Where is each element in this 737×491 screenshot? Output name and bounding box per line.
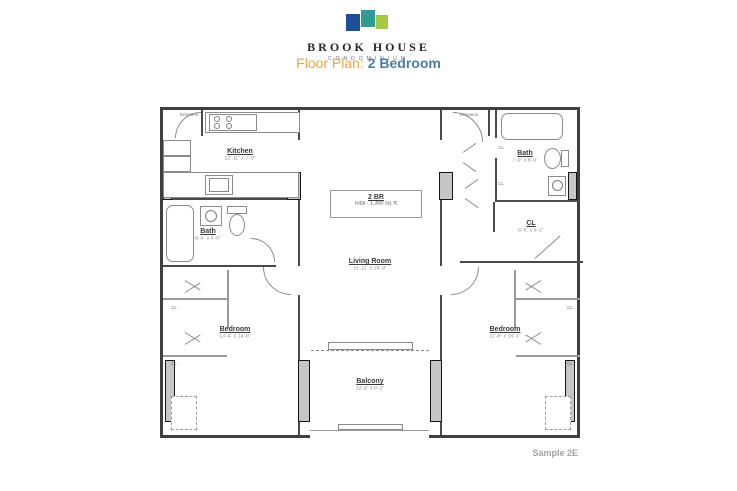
closet-room-label: CL 6'-6" x 5'-2" — [501, 220, 561, 235]
bedroom-right-label-text: Bedroom — [490, 326, 521, 333]
wall — [440, 198, 442, 266]
bath-sink-basin-icon — [552, 180, 563, 191]
refrigerator — [163, 140, 191, 156]
bathtub — [501, 113, 563, 140]
bedroom-left-dims: 13'-4" x 14'-8" — [193, 334, 278, 340]
floor-plan: Entrance Kitchen 12'-11" x 7'-9" Bath 8'… — [160, 107, 580, 438]
closet-door-line — [535, 235, 561, 258]
closet-wall — [227, 270, 229, 328]
bedroom-door-arc — [263, 267, 291, 295]
wall — [495, 110, 497, 138]
closet-wall — [514, 270, 516, 328]
closet-label: CL — [494, 182, 509, 187]
logo-squares-icon — [346, 10, 392, 38]
closet-door-line — [185, 280, 201, 290]
wall — [493, 202, 495, 232]
living-room-dims: 15'-11" x 24'-8" — [319, 266, 421, 272]
stove-burner-icon — [226, 123, 232, 129]
closet-wall — [163, 355, 227, 357]
bedroom-door-arc — [451, 267, 479, 295]
bath-left-label: Bath 8'-5" x 5'-0" — [178, 228, 238, 243]
closet-label: CL — [562, 362, 579, 367]
bath-right-dims: 7'-0" x 8'-0" — [506, 158, 543, 164]
kitchen-sink-basin — [209, 178, 229, 192]
bath-door-arc — [251, 238, 275, 262]
closet-label: CL — [562, 306, 579, 311]
balcony-dims: 12'-8" x 6'-0" — [319, 386, 421, 392]
closet-wall — [516, 355, 580, 357]
balcony-label: Balcony 12'-8" x 6'-0" — [310, 378, 430, 393]
wall — [488, 110, 490, 136]
bedroom-left-label-text: Bedroom — [220, 326, 251, 333]
closet-room-label-text: CL — [526, 220, 535, 227]
bath-left-dims: 8'-5" x 5'-0" — [183, 236, 234, 242]
column — [439, 172, 453, 200]
wall — [495, 200, 580, 202]
page-title-prefix: Floor Plan: — [296, 55, 364, 71]
page-title-value: 2 Bedroom — [368, 55, 441, 71]
brand-name: BROOK HOUSE — [0, 40, 737, 55]
toilet — [544, 148, 561, 169]
bedroom-right-label: Bedroom 11'-6" x 16'-1" — [455, 326, 555, 341]
entrance-label: Entrance — [454, 113, 484, 118]
page: BROOK HOUSE CONDOMINIUM Floor Plan: 2 Be… — [0, 0, 737, 491]
wall — [163, 265, 276, 267]
wall — [460, 261, 583, 263]
wall — [298, 198, 300, 266]
page-title: Floor Plan: 2 Bedroom — [0, 55, 737, 71]
unit-total-sqft: Total - 1,300 sq. ft. — [336, 201, 417, 206]
wall — [495, 158, 497, 202]
toilet-tank — [561, 150, 569, 167]
unit-type: 2 BR — [331, 194, 421, 201]
unit-summary-box: 2 BR Total - 1,300 sq. ft. — [330, 190, 422, 218]
closet-door-line — [463, 162, 477, 172]
column — [568, 172, 577, 200]
stove-burner-icon — [214, 116, 220, 122]
toilet-tank — [227, 206, 247, 214]
kitchen-label: Kitchen 12'-11" x 7'-9" — [200, 148, 280, 163]
closet-label: CL — [166, 362, 183, 367]
bath-right-label-text: Bath — [517, 150, 533, 157]
living-room-label-text: Living Room — [349, 258, 391, 265]
column — [298, 360, 310, 422]
utility-closet — [171, 396, 197, 430]
entrance-label: Entrance — [174, 113, 204, 118]
wall — [163, 198, 300, 200]
bath-sink-basin-icon — [205, 210, 217, 222]
column — [430, 360, 442, 422]
logo-square-blue-icon — [346, 14, 360, 31]
sliding-door — [328, 342, 413, 350]
balcony-rail — [338, 424, 403, 430]
utility-closet — [545, 396, 571, 430]
sliding-door-dashed-line — [311, 350, 429, 351]
closet-label: CL — [166, 306, 183, 311]
closet-wall — [163, 298, 227, 300]
cabinet — [163, 156, 191, 172]
stove-burner-icon — [214, 123, 220, 129]
bedroom-right-dims: 11'-6" x 16'-1" — [463, 334, 548, 340]
closet-door-line — [463, 143, 477, 153]
balcony-label-text: Balcony — [356, 378, 383, 385]
closet-door-line — [465, 198, 479, 208]
kitchen-label-text: Kitchen — [227, 148, 253, 155]
logo-square-green-icon — [376, 15, 388, 29]
closet-wall — [516, 298, 580, 300]
balcony-open-edge — [310, 435, 429, 438]
bedroom-left-label: Bedroom 13'-4" x 14'-8" — [185, 326, 285, 341]
closet-door-line — [465, 179, 479, 189]
living-room-label: Living Room 15'-11" x 24'-8" — [310, 258, 430, 273]
kitchen-dims: 12'-11" x 7'-9" — [206, 156, 274, 162]
bath-left-label-text: Bath — [200, 228, 216, 235]
bath-right-label: Bath 7'-0" x 8'-0" — [503, 150, 547, 165]
sample-label: Sample 2E — [0, 448, 578, 458]
closet-room-dims: 6'-6" x 5'-2" — [506, 228, 557, 234]
wall — [440, 110, 442, 140]
balcony-rail-line — [310, 430, 429, 431]
stove-burner-icon — [226, 116, 232, 122]
logo-square-teal-icon — [361, 10, 375, 27]
